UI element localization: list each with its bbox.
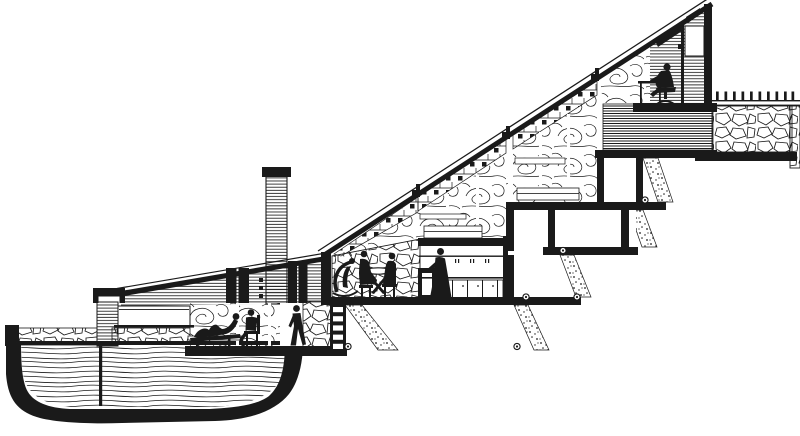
anchor-circle <box>642 197 648 203</box>
box-wall <box>506 209 514 251</box>
chimney <box>266 176 287 304</box>
louver-panel <box>239 268 250 303</box>
pool-divider-wall <box>99 346 102 406</box>
switch-box <box>678 44 683 49</box>
peak-end-wall <box>704 4 712 112</box>
window-stone-base <box>112 328 190 344</box>
parapet-foot-left <box>93 296 99 303</box>
pass-through <box>422 273 432 295</box>
anchor-circle <box>560 247 566 253</box>
bed-platform <box>424 226 482 238</box>
anchor-circle <box>345 343 351 349</box>
garden-stone-band <box>8 328 97 345</box>
box-wall <box>548 209 555 249</box>
chimney-cap <box>262 167 291 177</box>
ladder <box>330 302 346 352</box>
box-wall <box>597 156 604 202</box>
platform-line <box>424 231 482 232</box>
louver-panel <box>226 268 237 303</box>
parapet-cap <box>93 288 125 297</box>
living-floor-slab <box>185 346 347 356</box>
shelf-band <box>515 158 565 164</box>
bedroom-floor-slab <box>418 238 513 246</box>
shelf-band <box>420 214 466 219</box>
anchor-circle <box>574 294 580 300</box>
shelf-line <box>419 256 504 257</box>
hearth-stone-block <box>303 301 332 347</box>
window-sill <box>114 325 194 328</box>
platform-line <box>517 193 579 194</box>
party-wall <box>321 252 331 304</box>
partition <box>681 22 684 103</box>
wall-dot <box>259 294 263 298</box>
dining-floor-slab <box>321 297 581 305</box>
cupboard <box>685 26 704 56</box>
box-wall <box>636 156 643 202</box>
bed-platform <box>517 188 579 200</box>
retaining-base-slab <box>695 152 797 161</box>
drawing-canvas <box>0 0 800 436</box>
counter-top <box>419 277 504 279</box>
anchor-circle <box>514 343 520 349</box>
box-wall <box>621 209 629 249</box>
architectural-section-drawing <box>0 0 800 436</box>
louver-panel <box>299 261 308 303</box>
stone-retaining-wall <box>712 106 792 152</box>
window-head-line <box>119 309 189 310</box>
upper-slab <box>506 202 666 210</box>
box-floor-slab <box>543 247 638 255</box>
louver-panel <box>288 261 297 303</box>
wall-dot <box>259 286 263 290</box>
panel-joint <box>268 303 271 347</box>
wall-dot <box>259 278 263 282</box>
anchor-circle <box>523 294 529 300</box>
